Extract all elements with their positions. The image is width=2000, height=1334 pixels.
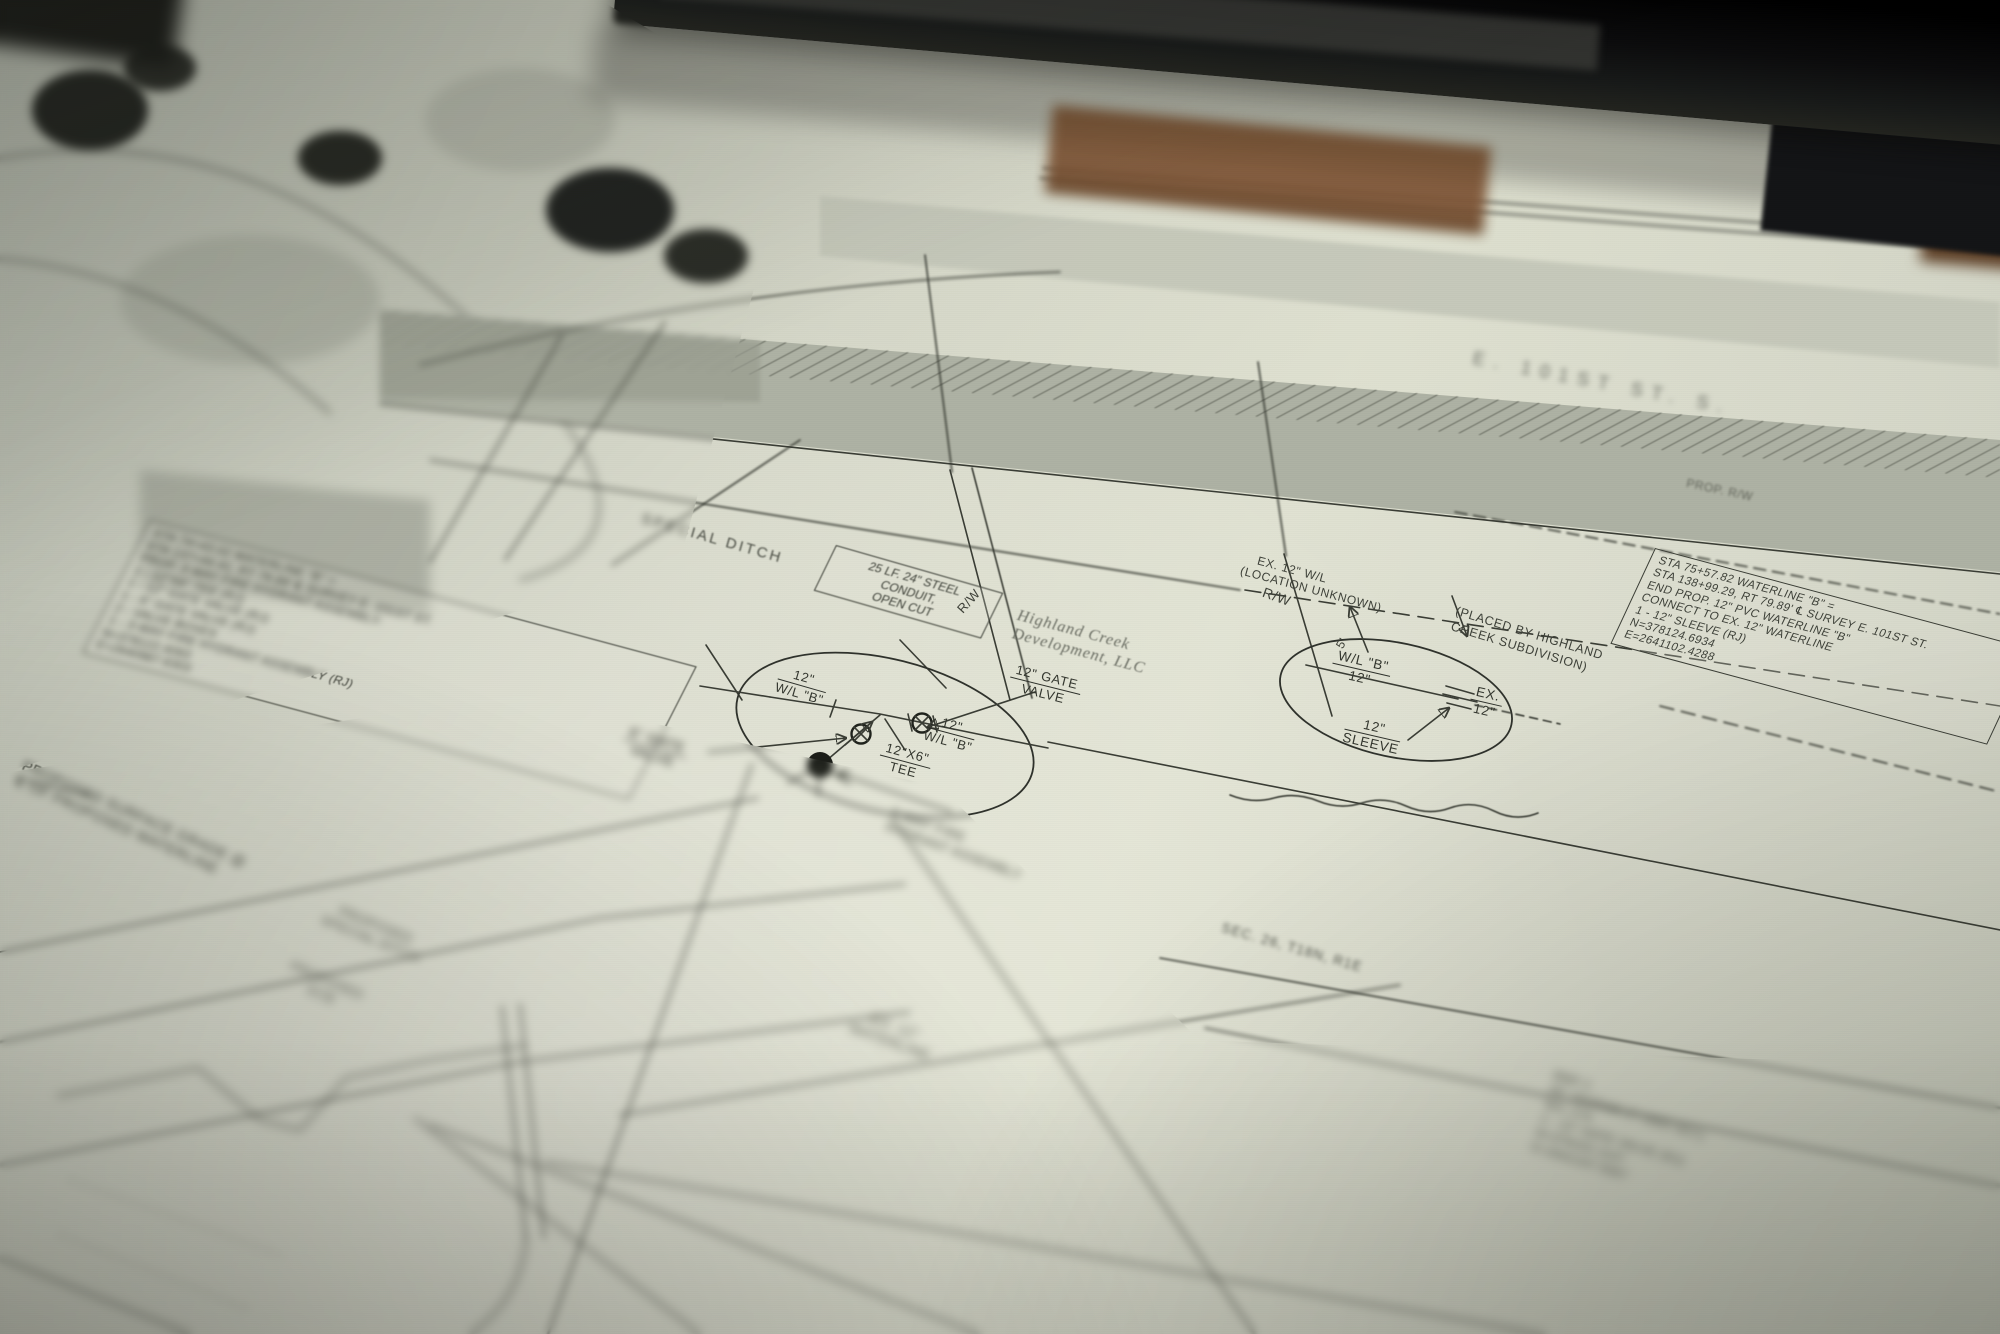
profile-ditch-blurred [0, 1004, 1545, 1334]
photo-of-engineering-plan: STA 74+43.02 WATERLINE "B" = STA 137+44.… [0, 0, 2000, 1334]
blurred-background-drawing [0, 45, 748, 615]
five-foot-dim-arrow [1350, 607, 1368, 652]
